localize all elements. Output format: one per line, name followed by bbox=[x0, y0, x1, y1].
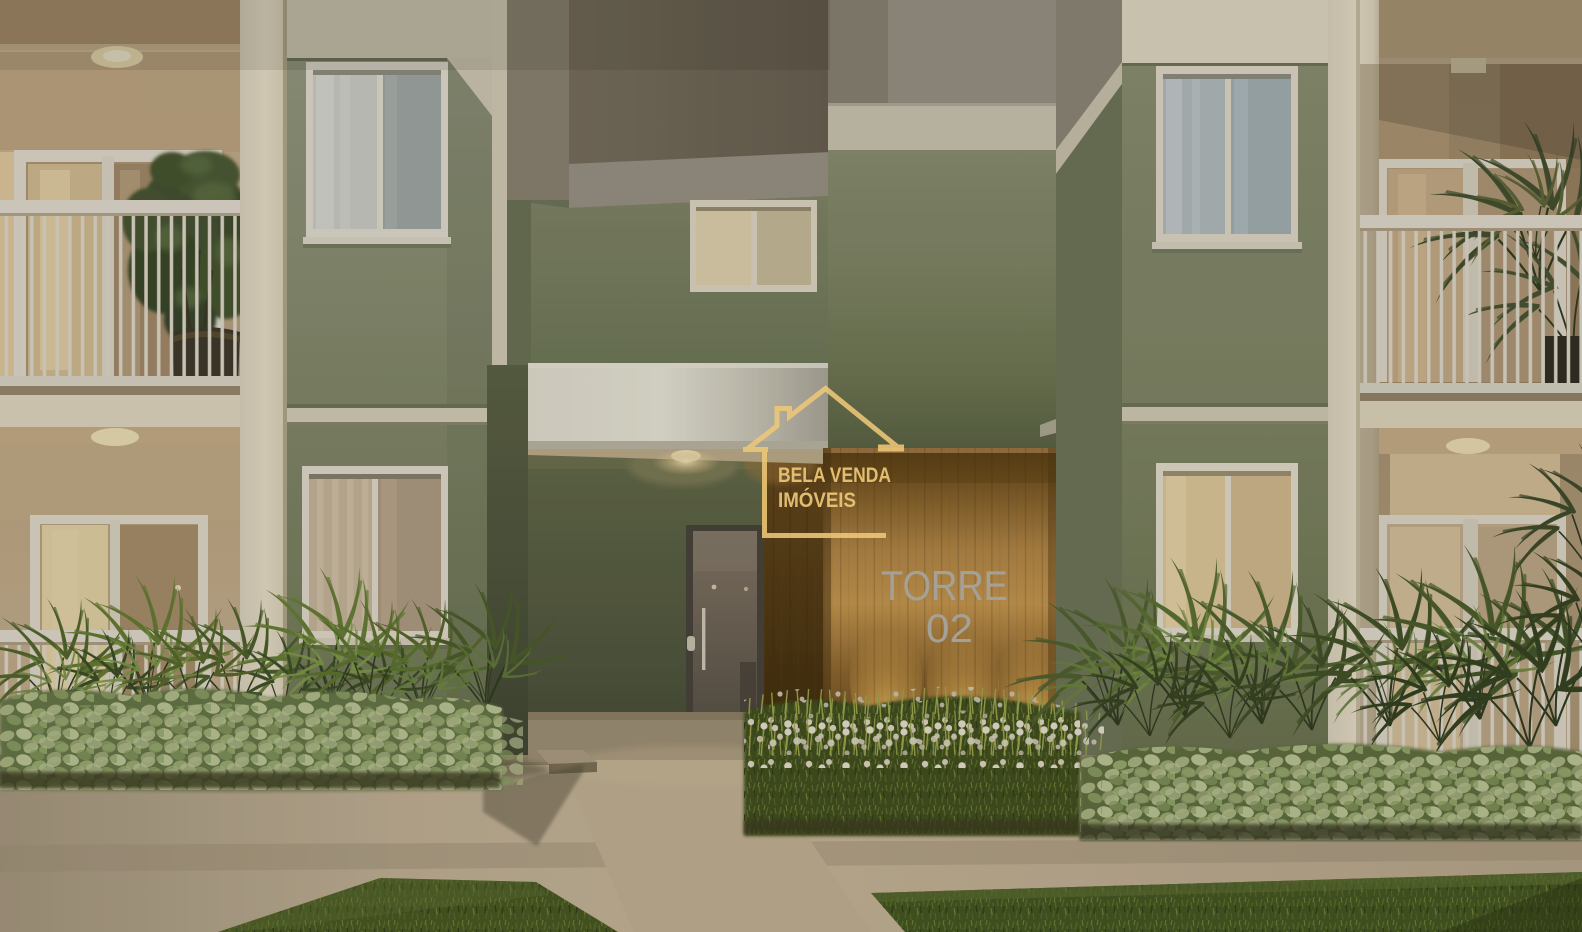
svg-text:IMÓVEIS: IMÓVEIS bbox=[778, 488, 856, 512]
svg-text:BELA VENDA: BELA VENDA bbox=[778, 464, 891, 487]
